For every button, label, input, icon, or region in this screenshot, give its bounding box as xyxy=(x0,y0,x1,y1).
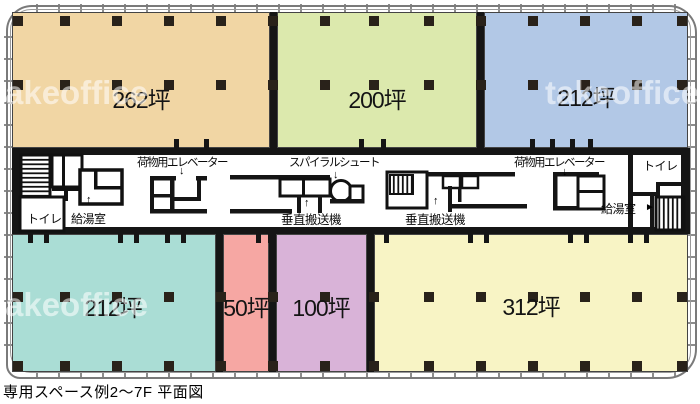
plan-caption: 専用スペース例2〜7F 平面図 xyxy=(3,381,204,402)
spiral-chute-label: スパイラルシュート xyxy=(289,158,379,170)
arrow-right-icon: ► xyxy=(645,203,655,213)
vertical-conveyor-label-right: 垂直搬送機 xyxy=(405,214,465,227)
arrow-up-icon: ↑ xyxy=(304,198,310,209)
toilet-label-right: トイレ xyxy=(643,160,678,172)
floor-plan-diagram: 262坪 200坪 212坪 212坪 50坪 100坪 312坪 荷物用エレベ… xyxy=(0,0,700,404)
zone-area-label-100: 100坪 xyxy=(261,296,381,321)
vertical-conveyor-label-left: 垂直搬送機 xyxy=(281,214,341,227)
watermark: takeoffice xyxy=(545,76,699,109)
kitchenette-label-right: 給湯室 xyxy=(601,203,636,215)
zone-area-label-312: 312坪 xyxy=(451,295,611,320)
zone-top-center-200 xyxy=(277,12,477,148)
freight-elevator-label-right: 荷物用エレベーター xyxy=(514,158,604,170)
watermark: takeoffice xyxy=(0,76,148,109)
zone-area-label-200: 200坪 xyxy=(297,88,457,113)
partition-wall xyxy=(270,12,277,148)
corridor-wall-top xyxy=(12,148,688,155)
kitchenette-label-left: 給湯室 xyxy=(71,213,106,225)
watermark: takeoffice xyxy=(0,288,148,321)
arrow-up-icon: ↑ xyxy=(433,196,439,207)
arrow-down-icon: ↓ xyxy=(179,166,185,177)
arrow-down-icon: ↓ xyxy=(562,167,568,178)
partition-wall xyxy=(477,12,484,148)
toilet-label-left: トイレ xyxy=(27,213,62,225)
corridor-wall-bottom xyxy=(12,227,688,234)
arrow-down-icon: ↓ xyxy=(333,170,339,181)
arrow-up-icon: ↑ xyxy=(86,195,92,206)
